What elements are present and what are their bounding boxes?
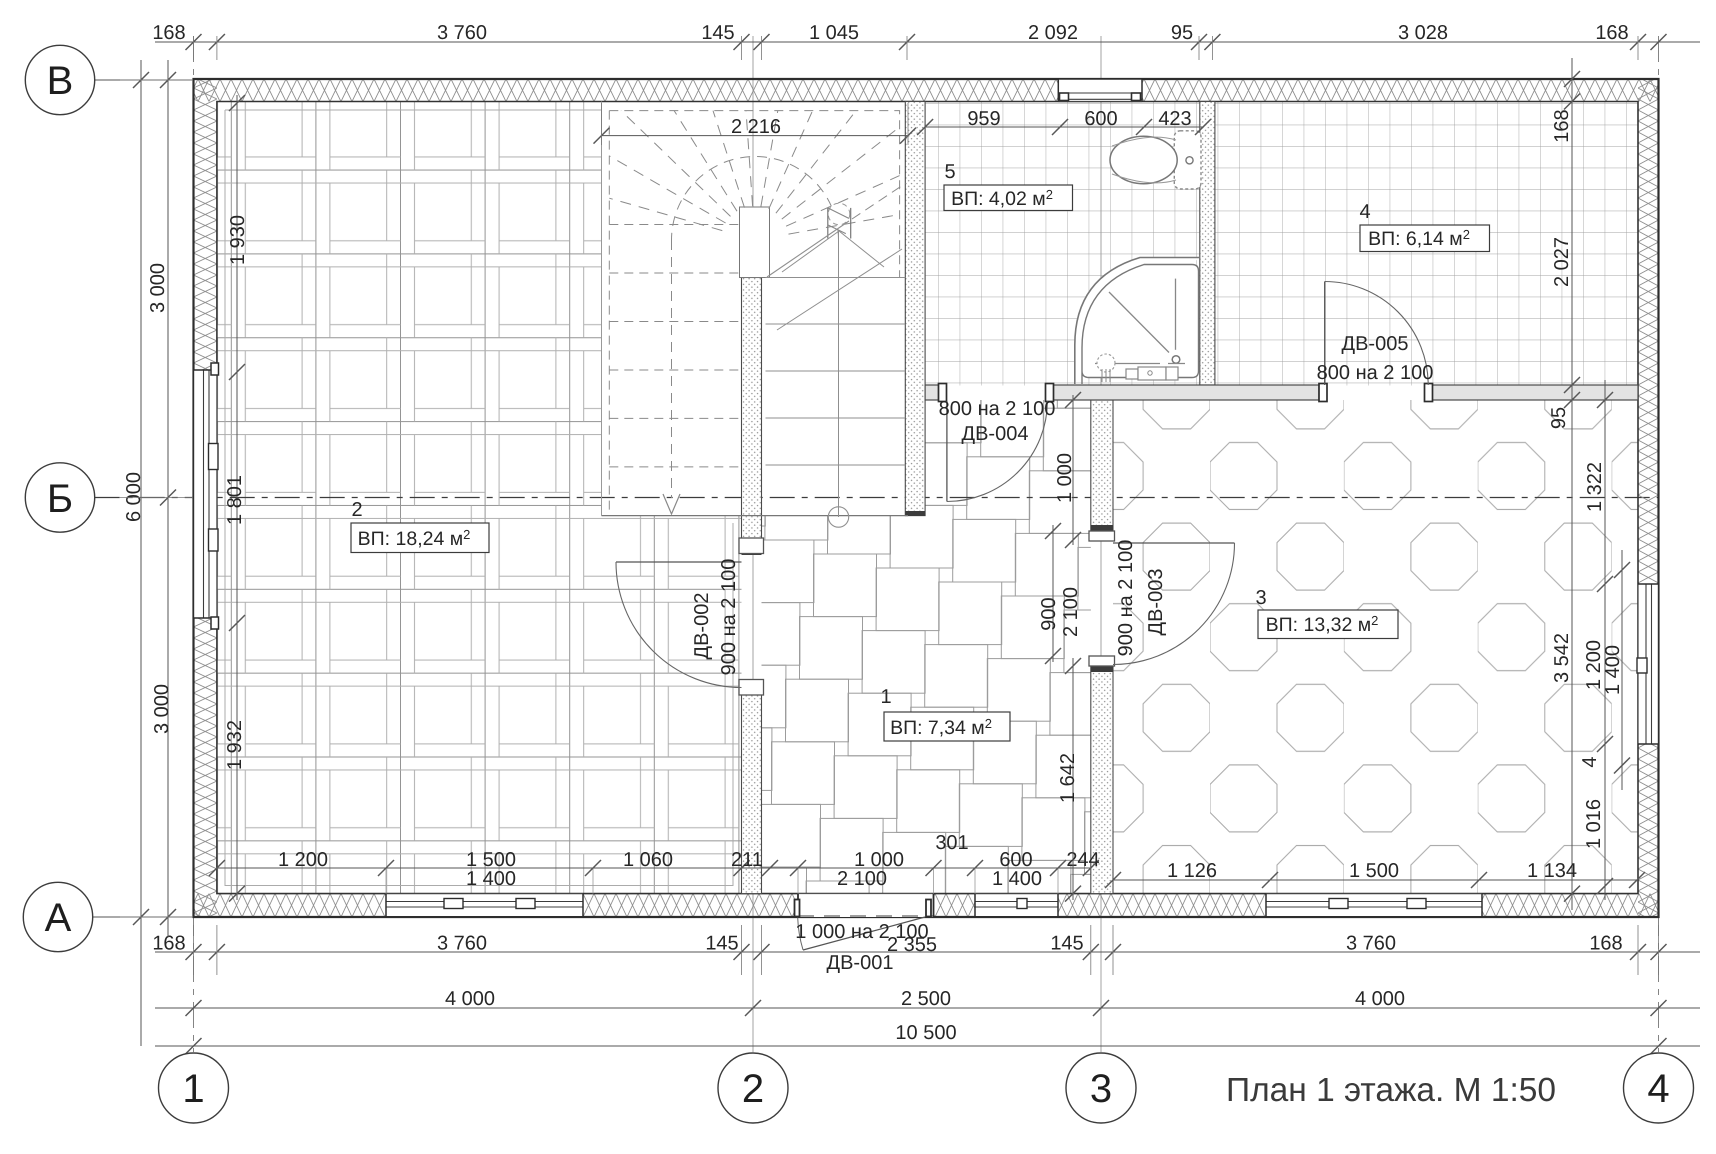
svg-text:4: 4	[1647, 1067, 1669, 1111]
svg-text:168: 168	[1589, 933, 1622, 955]
svg-text:10 500: 10 500	[895, 1022, 956, 1044]
svg-text:ДВ-001: ДВ-001	[827, 952, 894, 974]
svg-text:1 060: 1 060	[623, 849, 673, 871]
svg-text:959: 959	[967, 108, 1000, 130]
svg-text:План 1 этажа. М 1:50: План 1 этажа. М 1:50	[1226, 1072, 1556, 1109]
svg-text:В: В	[47, 59, 74, 103]
svg-text:600: 600	[1084, 108, 1117, 130]
svg-text:4: 4	[1579, 756, 1601, 767]
svg-text:95: 95	[1548, 407, 1570, 429]
svg-text:4 000: 4 000	[445, 988, 495, 1010]
svg-text:ДВ-002: ДВ-002	[691, 593, 713, 660]
svg-text:5: 5	[944, 161, 955, 183]
svg-text:1 000: 1 000	[1054, 453, 1076, 503]
svg-text:ВП: 13,32 м2: ВП: 13,32 м2	[1266, 613, 1379, 636]
svg-text:ДВ-004: ДВ-004	[962, 423, 1029, 445]
svg-text:1 045: 1 045	[809, 22, 859, 44]
svg-text:2: 2	[742, 1067, 764, 1111]
svg-text:1: 1	[880, 686, 891, 708]
svg-text:3 760: 3 760	[437, 22, 487, 44]
svg-text:211: 211	[731, 849, 763, 871]
svg-text:1: 1	[182, 1067, 204, 1111]
svg-text:1 322: 1 322	[1584, 462, 1606, 512]
svg-text:2 027: 2 027	[1551, 237, 1573, 287]
svg-text:1 000 на 2 100: 1 000 на 2 100	[795, 921, 928, 943]
svg-text:ДВ-005: ДВ-005	[1342, 333, 1409, 355]
svg-text:1 642: 1 642	[1057, 753, 1079, 803]
svg-text:168: 168	[152, 933, 185, 955]
svg-text:3 760: 3 760	[437, 933, 487, 955]
svg-text:2 500: 2 500	[901, 988, 951, 1010]
svg-text:900 на 2 100: 900 на 2 100	[1115, 540, 1137, 657]
svg-text:145: 145	[701, 22, 734, 44]
svg-text:ВП: 4,02 м2: ВП: 4,02 м2	[951, 187, 1053, 210]
svg-text:3 000: 3 000	[147, 263, 169, 313]
svg-text:2 100: 2 100	[837, 868, 887, 890]
svg-text:800 на 2 100: 800 на 2 100	[939, 398, 1056, 420]
svg-text:1 134: 1 134	[1527, 860, 1577, 882]
svg-text:ВП: 7,34 м2: ВП: 7,34 м2	[890, 716, 992, 739]
svg-text:ДВ-003: ДВ-003	[1145, 569, 1167, 636]
svg-text:6 000: 6 000	[123, 472, 145, 522]
svg-text:1 200: 1 200	[278, 849, 328, 871]
svg-text:145: 145	[705, 933, 738, 955]
svg-text:3 542: 3 542	[1551, 633, 1573, 683]
svg-text:168: 168	[1551, 109, 1573, 142]
svg-text:145: 145	[1050, 933, 1083, 955]
svg-text:95: 95	[1171, 22, 1193, 44]
svg-text:Б: Б	[47, 477, 73, 521]
svg-text:3 760: 3 760	[1346, 933, 1396, 955]
svg-text:244: 244	[1066, 849, 1099, 871]
svg-text:3 028: 3 028	[1398, 22, 1448, 44]
svg-text:4: 4	[1359, 201, 1370, 223]
svg-text:2: 2	[351, 499, 362, 521]
svg-text:168: 168	[152, 22, 185, 44]
svg-text:1 930: 1 930	[227, 215, 249, 265]
svg-text:3 000: 3 000	[151, 684, 173, 734]
svg-text:900: 900	[1038, 597, 1060, 630]
svg-text:1 400: 1 400	[1602, 645, 1624, 695]
svg-text:1 400: 1 400	[992, 868, 1042, 890]
svg-text:900 на 2 100: 900 на 2 100	[718, 559, 740, 676]
svg-text:168: 168	[1595, 22, 1628, 44]
svg-text:301: 301	[935, 832, 968, 854]
svg-text:1 400: 1 400	[466, 868, 516, 890]
svg-text:1 016: 1 016	[1583, 799, 1605, 849]
svg-text:А: А	[45, 896, 72, 940]
svg-text:ВП: 6,14 м2: ВП: 6,14 м2	[1368, 227, 1470, 250]
svg-text:3: 3	[1255, 587, 1266, 609]
svg-text:2 100: 2 100	[1060, 587, 1082, 637]
svg-text:800 на 2 100: 800 на 2 100	[1317, 362, 1434, 384]
svg-text:3: 3	[1090, 1067, 1112, 1111]
svg-text:1 126: 1 126	[1167, 860, 1217, 882]
svg-text:1 801: 1 801	[224, 475, 246, 525]
svg-text:1 932: 1 932	[224, 720, 246, 770]
svg-text:1 500: 1 500	[1349, 860, 1399, 882]
svg-text:2 216: 2 216	[731, 116, 781, 138]
svg-text:4 000: 4 000	[1355, 988, 1405, 1010]
svg-text:2 092: 2 092	[1028, 22, 1078, 44]
svg-text:ВП: 18,24 м2: ВП: 18,24 м2	[358, 527, 471, 550]
svg-text:423: 423	[1158, 108, 1191, 130]
